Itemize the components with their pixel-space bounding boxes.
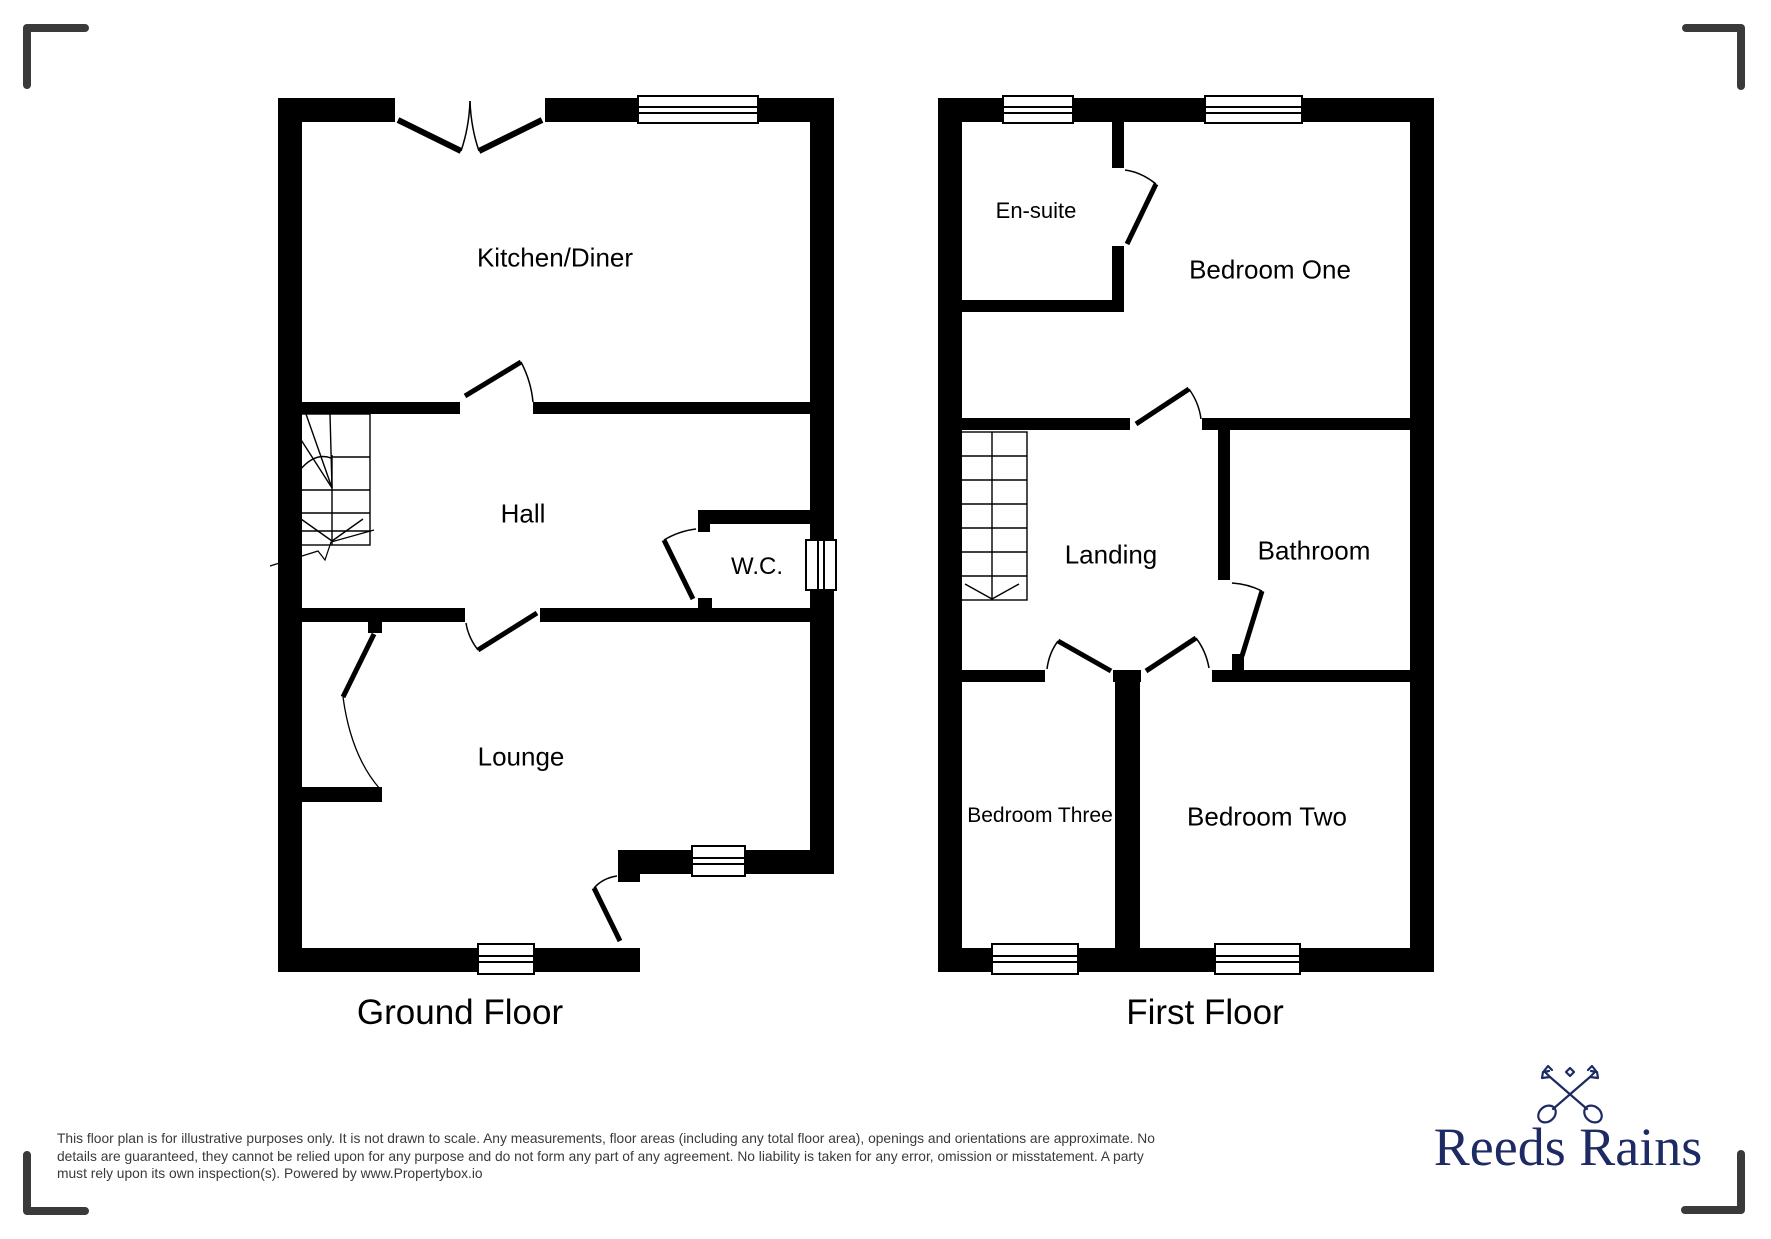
room-label-kitchen-diner: Kitchen/Diner bbox=[477, 243, 633, 274]
room-label-wc: W.C. bbox=[731, 553, 783, 581]
room-label-bedroom-two: Bedroom Two bbox=[1187, 802, 1347, 833]
first-floor-windows bbox=[992, 96, 1302, 974]
door bbox=[1136, 389, 1201, 424]
window bbox=[638, 96, 758, 123]
first-floor-stairs bbox=[957, 432, 1027, 600]
window bbox=[806, 540, 836, 590]
first-floor-title: First Floor bbox=[1126, 993, 1284, 1033]
corner-mark-top-right bbox=[1686, 28, 1741, 86]
room-label-hall: Hall bbox=[501, 499, 546, 530]
window bbox=[1205, 96, 1302, 123]
room-label-bedroom-one: Bedroom One bbox=[1189, 255, 1351, 286]
disclaimer-text: This floor plan is for illustrative purp… bbox=[57, 1130, 1237, 1183]
ground-floor-walls bbox=[278, 98, 834, 972]
window bbox=[1215, 944, 1300, 974]
room-label-bathroom: Bathroom bbox=[1258, 536, 1371, 567]
corner-mark-top-left bbox=[27, 28, 85, 85]
disclaimer-line: This floor plan is for illustrative purp… bbox=[57, 1130, 1237, 1148]
door bbox=[1232, 583, 1262, 656]
window bbox=[992, 944, 1078, 974]
door bbox=[466, 613, 537, 650]
window bbox=[1003, 96, 1073, 123]
french-doors bbox=[398, 101, 542, 151]
window bbox=[692, 846, 745, 876]
door bbox=[465, 362, 533, 402]
room-label-bedroom-three: Bedroom Three bbox=[967, 804, 1113, 828]
door bbox=[594, 876, 620, 941]
door bbox=[1047, 641, 1111, 671]
room-label-landing: Landing bbox=[1065, 540, 1158, 571]
door bbox=[1146, 638, 1209, 671]
door bbox=[664, 529, 696, 599]
ground-floor-title: Ground Floor bbox=[357, 993, 563, 1033]
disclaimer-line: details are guaranteed, they cannot be r… bbox=[57, 1148, 1237, 1166]
brand-logo-text: Reeds Rains bbox=[1434, 1116, 1702, 1178]
floorplan-drawing bbox=[0, 0, 1771, 1239]
room-label-lounge: Lounge bbox=[478, 742, 565, 773]
door bbox=[1125, 170, 1156, 244]
door bbox=[343, 634, 380, 789]
disclaimer-line: must rely upon its own inspection(s). Po… bbox=[57, 1165, 1237, 1183]
ground-floor-windows bbox=[478, 96, 836, 974]
room-label-en-suite: En-suite bbox=[996, 198, 1077, 224]
floorplan-page: Kitchen/Diner Hall W.C. Lounge En-suite … bbox=[0, 0, 1771, 1239]
window bbox=[478, 944, 534, 974]
